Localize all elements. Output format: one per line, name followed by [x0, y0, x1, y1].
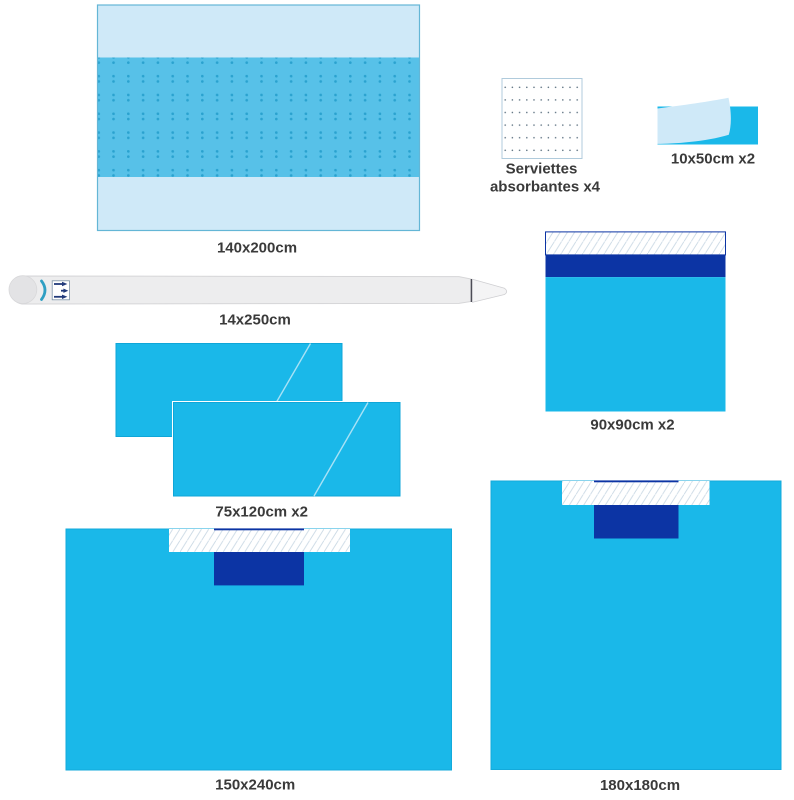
svg-text:14x250cm: 14x250cm [219, 312, 291, 329]
svg-text:90x90cm x2: 90x90cm x2 [590, 417, 674, 434]
svg-text:Serviettes: Serviettes [506, 161, 578, 178]
svg-text:180x180cm: 180x180cm [600, 777, 680, 794]
svg-text:140x200cm: 140x200cm [217, 240, 297, 257]
svg-text:150x240cm: 150x240cm [215, 777, 295, 794]
svg-text:10x50cm x2: 10x50cm x2 [671, 151, 755, 168]
svg-text:absorbantes x4: absorbantes x4 [490, 179, 601, 196]
svg-text:75x120cm x2: 75x120cm x2 [215, 504, 308, 521]
